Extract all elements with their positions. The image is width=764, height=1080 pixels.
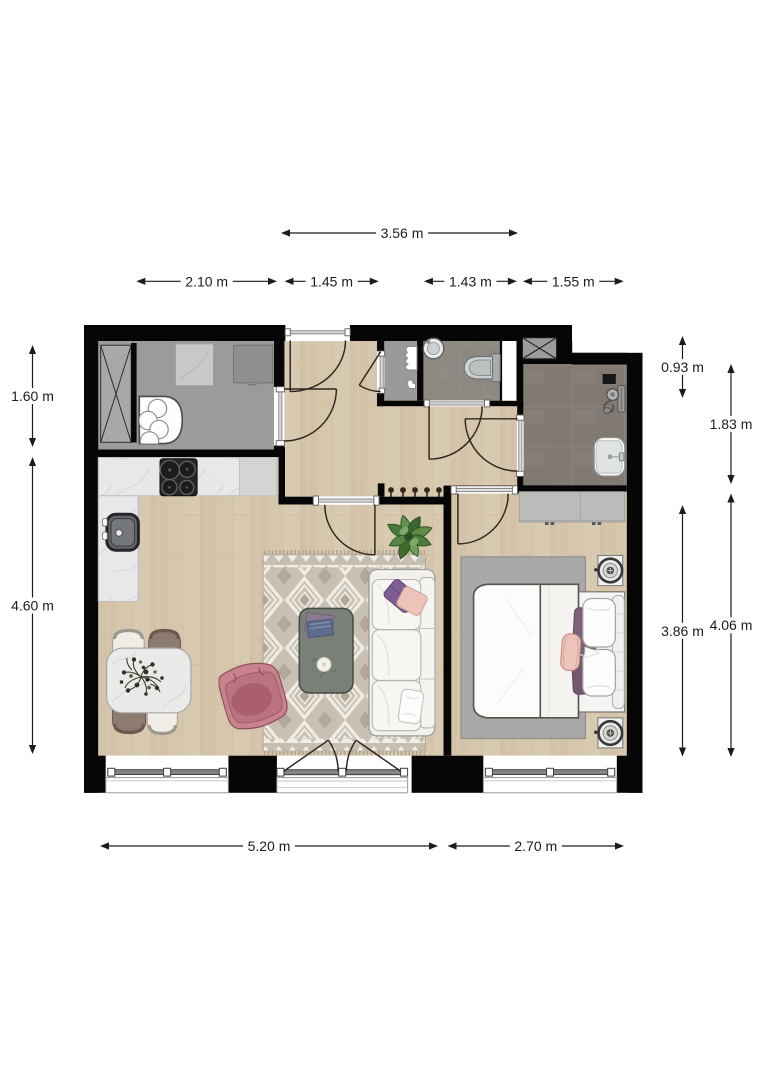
svg-text:4.06 m: 4.06 m <box>710 617 753 633</box>
svg-text:4.60 m: 4.60 m <box>11 598 54 614</box>
svg-text:1.43 m: 1.43 m <box>449 273 492 289</box>
svg-text:1.55 m: 1.55 m <box>552 273 595 289</box>
svg-text:2.70 m: 2.70 m <box>514 838 557 854</box>
svg-text:1.60 m: 1.60 m <box>11 388 54 404</box>
svg-text:1.45 m: 1.45 m <box>310 273 353 289</box>
svg-text:3.56 m: 3.56 m <box>381 225 424 241</box>
svg-text:5.20 m: 5.20 m <box>248 838 291 854</box>
svg-text:3.86 m: 3.86 m <box>661 623 704 639</box>
svg-text:1.83 m: 1.83 m <box>710 416 753 432</box>
svg-text:2.10 m: 2.10 m <box>185 273 228 289</box>
svg-text:0.93 m: 0.93 m <box>661 359 704 375</box>
